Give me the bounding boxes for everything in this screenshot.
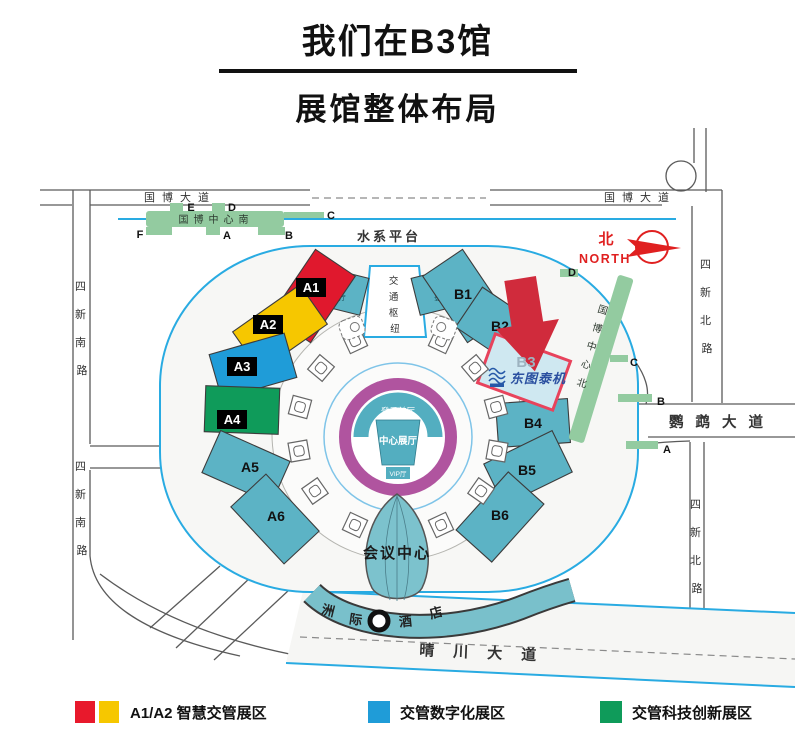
hall-b4-label: B4 [524,415,542,431]
street-sixin-north-lower: 四 新 北 路 [690,499,704,595]
metro-north-exit-c: C [630,357,638,369]
street-guobo-avenue-left: 国博大道 [144,190,216,204]
legend-swatch-yellow [99,701,119,723]
legend-swatch-red [75,701,95,723]
metro-north-exit-a: A [663,444,671,456]
metro-south-exit-c: C [327,210,335,222]
metro-north-exit-d: D [568,267,576,279]
street-yingwu-avenue: 鹦鹉大道 [668,413,775,431]
metro-south-exit-a: A [223,230,231,242]
hall-a4-label: A4 [224,412,241,427]
north-cn-label: 北 [598,231,613,248]
venue-map: 晴川大道 水系平台 交 通 枢 纽 A0 登录厅 B0 登录厅 [0,0,795,749]
metro-south-exit-f: F [137,229,144,241]
conference-center-label: 会议中心 [363,544,431,562]
legend-swatch-green [600,701,622,723]
legend-item-innovation: 交管科技创新展区 [632,704,752,722]
hub-char: 纽 [390,323,400,335]
hotel-char: 酒 [398,613,413,629]
water-platform-label: 水系平台 [357,229,421,244]
hall-b3-label: B3 [516,354,535,371]
street-sixin-north-upper: 四 新 北 路 [700,259,714,355]
legend-swatch-blue [368,701,390,723]
hall-a3-label: A3 [234,359,251,374]
front-hall-label: 登录前厅 [381,406,416,416]
hall-b1-label: B1 [454,286,472,302]
metro-station-south: 国博中心南 E D C F A B [137,202,335,242]
metro-south-exit-b: B [285,230,293,242]
hub-char: 交 [389,275,399,287]
hotel-dot [370,612,388,630]
metro-south-exit-d: D [228,202,236,214]
metro-south-name: 国博中心南 [179,213,254,226]
main-hall-label: 中心展厅 [379,435,418,447]
legend-item-smart-traffic: A1/A2 智慧交管展区 [130,704,267,722]
hub-char: 枢 [389,307,399,319]
hall-b6-label: B6 [491,507,509,523]
hall-a5-label: A5 [241,459,259,475]
north-indicator: 北 NORTH [579,231,681,266]
central-hall: 登录前厅 中心展厅 VIP厅 [345,384,451,490]
metro-north-exit-b: B [657,396,665,408]
exhibitor-logo-text: 东图泰机 [510,371,566,386]
hub-char: 通 [389,292,399,303]
legend-item-digital: 交管数字化展区 [400,704,505,722]
street-guobo-avenue-right: 国博大道 [604,190,676,204]
street-sixin-south-upper: 四 新 南 路 [75,281,89,377]
hotel-char: 际 [348,611,363,628]
hall-b5-label: B5 [518,462,536,478]
north-en-label: NORTH [579,252,631,266]
hall-a1-label: A1 [303,280,320,295]
legend: A1/A2 智慧交管展区 交管数字化展区 交管科技创新展区 [75,701,752,723]
vip-hall-label: VIP厅 [390,470,407,478]
hall-a6-label: A6 [267,508,285,524]
hall-a2-label: A2 [260,317,277,332]
street-sixin-south-lower: 四 新 南 路 [75,461,89,557]
